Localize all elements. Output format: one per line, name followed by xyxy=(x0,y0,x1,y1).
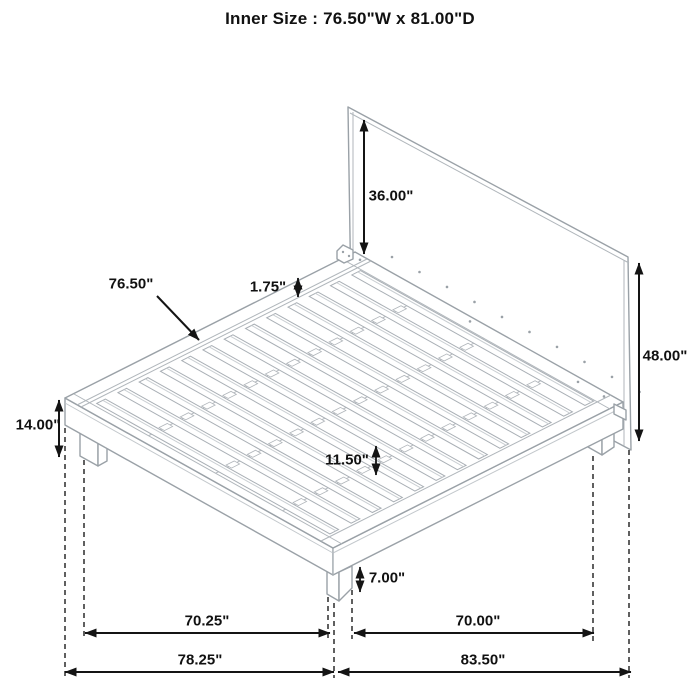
dim-label-slat-gap: 11.50" xyxy=(325,452,369,469)
dim-label-leg-span-depth: 70.00" xyxy=(456,613,501,630)
dimension-diagram-page: Inner Size : 76.50"W x 81.00"D xyxy=(0,0,700,700)
dim-label-leg-span-width: 70.25" xyxy=(185,613,230,630)
dim-label-platform-height: 14.00" xyxy=(16,417,61,434)
dim-label-overall-width: 78.25" xyxy=(178,652,223,669)
dim-label-headboard-above-platform: 36.00" xyxy=(369,188,414,205)
dim-label-leg-height: 7.00" xyxy=(369,570,405,587)
bed-line-drawing xyxy=(0,0,700,700)
dim-label-slat-thickness: 1.75" xyxy=(250,279,286,296)
dim-label-slat-length: 76.50" xyxy=(109,276,154,293)
leader-slat-length xyxy=(157,296,199,340)
dim-label-headboard-total-height: 48.00" xyxy=(643,348,688,365)
dim-label-overall-depth: 83.50" xyxy=(461,652,506,669)
